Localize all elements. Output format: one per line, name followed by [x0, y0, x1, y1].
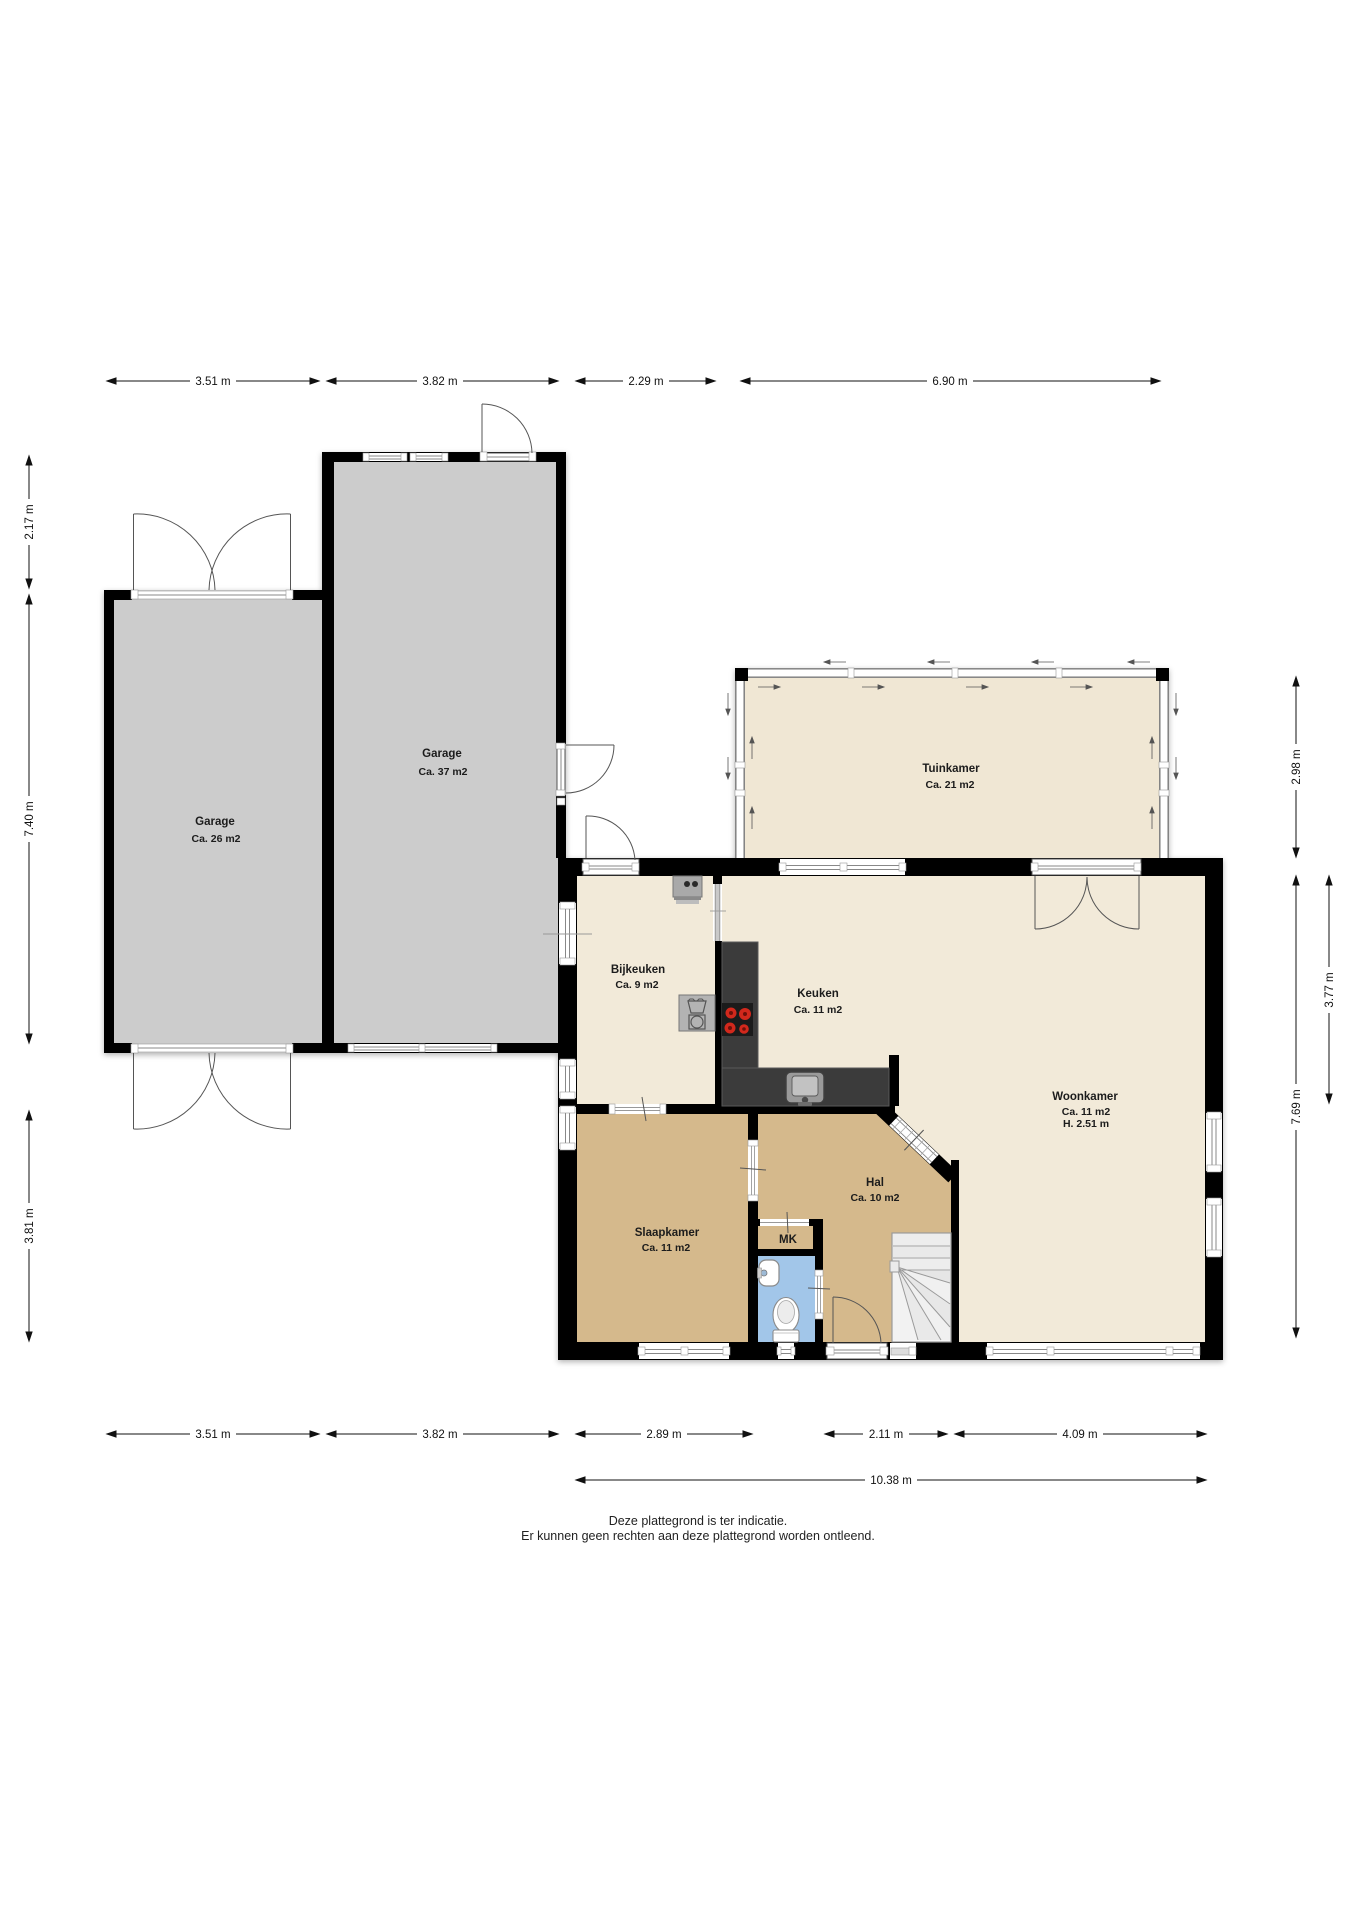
svg-text:Ca. 26 m2: Ca. 26 m2: [191, 833, 240, 845]
svg-text:Garage: Garage: [195, 816, 235, 828]
svg-text:Bijkeuken: Bijkeuken: [611, 964, 665, 976]
svg-text:3.81 m: 3.81 m: [24, 1208, 36, 1243]
svg-text:Slaapkamer: Slaapkamer: [635, 1227, 700, 1239]
svg-text:3.51 m: 3.51 m: [195, 1429, 230, 1441]
svg-text:Ca. 11 m2: Ca. 11 m2: [1062, 1106, 1111, 1118]
svg-text:Er kunnen geen rechten aan dez: Er kunnen geen rechten aan deze plattegr…: [521, 1529, 875, 1543]
svg-text:2.89 m: 2.89 m: [646, 1429, 681, 1441]
svg-text:7.40 m: 7.40 m: [24, 801, 36, 836]
svg-text:Hal: Hal: [866, 1177, 884, 1189]
svg-text:10.38 m: 10.38 m: [870, 1475, 912, 1487]
svg-text:6.90 m: 6.90 m: [932, 376, 967, 388]
svg-text:Garage: Garage: [422, 748, 462, 760]
svg-text:MK: MK: [779, 1234, 798, 1246]
svg-text:Deze plattegrond is ter indica: Deze plattegrond is ter indicatie.: [609, 1514, 788, 1528]
svg-text:3.77 m: 3.77 m: [1324, 972, 1336, 1007]
svg-text:3.51 m: 3.51 m: [195, 376, 230, 388]
svg-text:2.17 m: 2.17 m: [24, 504, 36, 539]
svg-text:Ca. 21 m2: Ca. 21 m2: [925, 779, 974, 791]
svg-text:3.82 m: 3.82 m: [422, 376, 457, 388]
svg-text:Keuken: Keuken: [797, 988, 839, 1000]
svg-text:Ca. 11 m2: Ca. 11 m2: [642, 1242, 691, 1254]
svg-text:Ca. 10 m2: Ca. 10 m2: [850, 1192, 899, 1204]
svg-text:2.11 m: 2.11 m: [869, 1429, 903, 1441]
svg-text:4.09 m: 4.09 m: [1062, 1429, 1097, 1441]
svg-text:Woonkamer: Woonkamer: [1052, 1091, 1118, 1103]
svg-text:Ca. 37 m2: Ca. 37 m2: [418, 766, 467, 778]
svg-text:Ca. 11 m2: Ca. 11 m2: [794, 1004, 843, 1016]
svg-text:H. 2.51 m: H. 2.51 m: [1063, 1118, 1109, 1130]
svg-text:7.69 m: 7.69 m: [1291, 1089, 1303, 1124]
svg-text:Tuinkamer: Tuinkamer: [922, 763, 980, 775]
svg-text:3.82 m: 3.82 m: [422, 1429, 457, 1441]
svg-text:2.98 m: 2.98 m: [1291, 749, 1303, 784]
svg-text:Ca. 9 m2: Ca. 9 m2: [615, 979, 658, 991]
svg-text:2.29 m: 2.29 m: [628, 376, 663, 388]
